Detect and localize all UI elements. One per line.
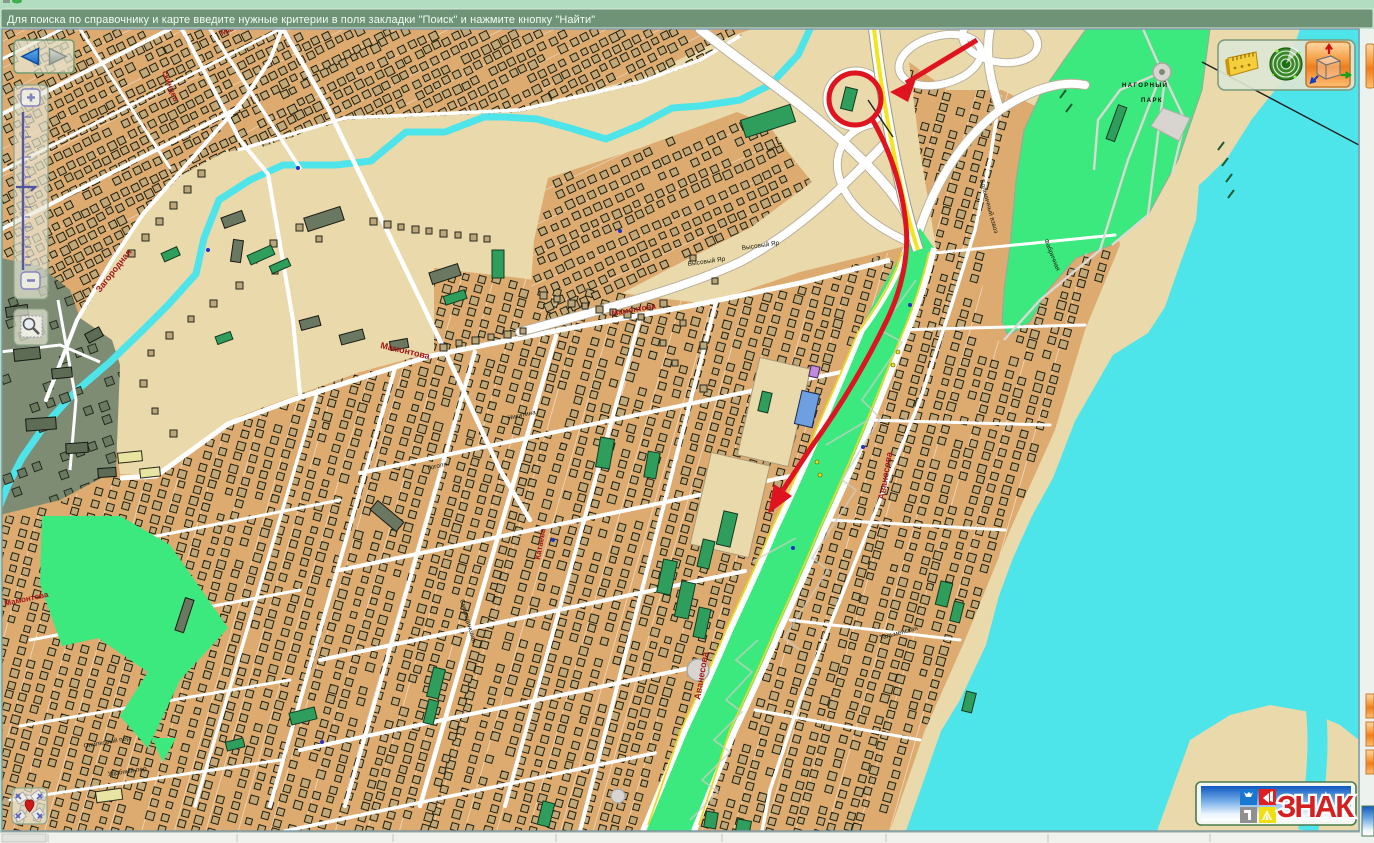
svg-text:ПАРК: ПАРК	[1141, 98, 1163, 104]
svg-text:НАГОРНЫЙ: НАГОРНЫЙ	[1122, 81, 1168, 89]
svg-text:ЗНАК: ЗНАК	[1277, 789, 1354, 824]
svg-text:Для поиска по справочнику и ка: Для поиска по справочнику и карте введит…	[7, 14, 595, 26]
